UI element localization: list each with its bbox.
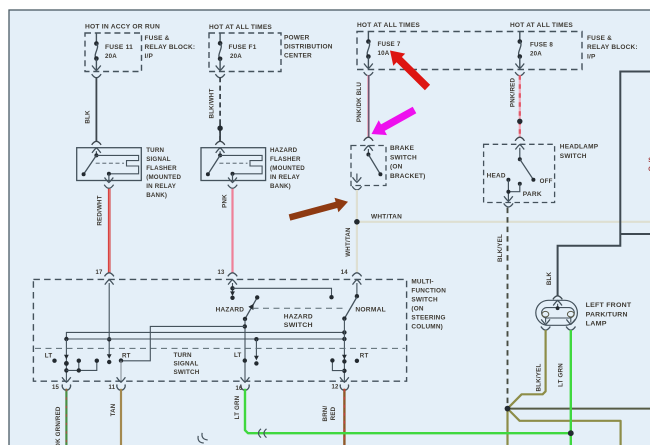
svg-text:RT: RT bbox=[122, 352, 131, 359]
svg-text:SWITCH: SWITCH bbox=[390, 154, 417, 161]
svg-text:HOT AT ALL TIMES: HOT AT ALL TIMES bbox=[510, 22, 573, 29]
svg-text:HAZARD: HAZARD bbox=[216, 306, 245, 313]
svg-text:DISTRIBUTION: DISTRIBUTION bbox=[284, 44, 333, 51]
svg-text:HAZARD: HAZARD bbox=[284, 313, 313, 320]
svg-text:POWER: POWER bbox=[284, 35, 310, 42]
svg-text:MULTI-: MULTI- bbox=[411, 279, 433, 286]
svg-text:LT GRN: LT GRN bbox=[234, 395, 241, 419]
svg-text:RED: RED bbox=[330, 406, 337, 420]
svg-text:11: 11 bbox=[109, 385, 116, 391]
svg-text:16: 16 bbox=[236, 386, 244, 392]
svg-text:FLASHER: FLASHER bbox=[270, 156, 301, 163]
svg-text:I/P: I/P bbox=[145, 53, 154, 60]
svg-text:LAMP: LAMP bbox=[586, 321, 608, 328]
svg-text:SIGNAL: SIGNAL bbox=[174, 361, 199, 368]
svg-text:COLUMN): COLUMN) bbox=[411, 324, 443, 331]
svg-text:NORMAL: NORMAL bbox=[355, 306, 386, 313]
svg-text:FUSE &: FUSE & bbox=[587, 35, 612, 42]
svg-text:13: 13 bbox=[218, 270, 226, 276]
svg-text:SWITCH: SWITCH bbox=[174, 369, 200, 376]
svg-text:FUSE 7: FUSE 7 bbox=[378, 41, 401, 48]
svg-text:RELAY BLOCK:: RELAY BLOCK: bbox=[145, 44, 196, 51]
svg-text:(ON: (ON bbox=[411, 306, 423, 313]
svg-text:DK GRN/RED: DK GRN/RED bbox=[55, 406, 62, 445]
svg-text:HAZARD: HAZARD bbox=[270, 147, 298, 154]
svg-text:RT: RT bbox=[360, 352, 369, 359]
svg-text:FUNCTION: FUNCTION bbox=[411, 288, 446, 295]
svg-text:BLK/YEL: BLK/YEL bbox=[535, 364, 542, 392]
svg-text:(ON: (ON bbox=[390, 164, 403, 171]
svg-text:BRAKE: BRAKE bbox=[390, 145, 415, 152]
svg-text:TURN: TURN bbox=[146, 147, 164, 154]
svg-text:10A: 10A bbox=[378, 50, 390, 57]
svg-text:SIGNAL: SIGNAL bbox=[146, 156, 171, 163]
svg-text:BRACKET): BRACKET) bbox=[390, 173, 426, 180]
svg-text:PARK: PARK bbox=[523, 191, 542, 198]
svg-text:FLASHER: FLASHER bbox=[146, 165, 177, 172]
svg-text:14: 14 bbox=[341, 270, 349, 276]
svg-text:HEADLAMP: HEADLAMP bbox=[560, 143, 599, 150]
svg-text:IN RELAY: IN RELAY bbox=[270, 174, 301, 181]
svg-text:FUSE 8: FUSE 8 bbox=[530, 42, 553, 49]
svg-text:SWITCH: SWITCH bbox=[560, 153, 587, 160]
svg-text:TURN: TURN bbox=[174, 352, 193, 359]
svg-text:SWITCH: SWITCH bbox=[411, 297, 438, 304]
svg-text:RELAY BLOCK:: RELAY BLOCK: bbox=[587, 44, 638, 51]
svg-text:PNK: PNK bbox=[222, 194, 229, 208]
svg-text:20A: 20A bbox=[230, 53, 242, 60]
svg-text:FUSE 11: FUSE 11 bbox=[105, 44, 133, 51]
svg-text:15: 15 bbox=[52, 385, 60, 391]
svg-text:I/P: I/P bbox=[587, 53, 596, 60]
svg-text:FUSE &: FUSE & bbox=[145, 35, 170, 42]
svg-text:(MOUNTED: (MOUNTED bbox=[270, 165, 305, 172]
svg-text:TAN: TAN bbox=[110, 403, 117, 416]
svg-text:17: 17 bbox=[96, 270, 104, 276]
svg-text:LT: LT bbox=[234, 352, 242, 359]
svg-text:RED/WHT: RED/WHT bbox=[97, 195, 104, 225]
svg-text:LEFT FRONT: LEFT FRONT bbox=[586, 302, 632, 309]
svg-text:HEAD: HEAD bbox=[487, 172, 506, 179]
svg-text:20A: 20A bbox=[530, 51, 542, 58]
svg-text:CENTER: CENTER bbox=[284, 53, 312, 60]
svg-text:PNK/DK BLU: PNK/DK BLU bbox=[356, 82, 363, 122]
svg-text:BLK/WHT: BLK/WHT bbox=[209, 89, 216, 119]
svg-text:BLK/YEL: BLK/YEL bbox=[497, 234, 504, 262]
svg-text:PARK/TURN: PARK/TURN bbox=[586, 311, 628, 318]
svg-text:BRN/: BRN/ bbox=[322, 405, 329, 421]
svg-text:HOT AT ALL TIMES: HOT AT ALL TIMES bbox=[357, 22, 420, 29]
svg-text:WHT/TAN: WHT/TAN bbox=[345, 227, 352, 257]
svg-text:IN RELAY: IN RELAY bbox=[146, 183, 177, 190]
svg-text:PNK/RED: PNK/RED bbox=[510, 78, 517, 108]
svg-text:SWITCH: SWITCH bbox=[284, 322, 313, 329]
svg-text:HOT IN ACCY OR RUN: HOT IN ACCY OR RUN bbox=[85, 24, 160, 31]
svg-text:12: 12 bbox=[332, 385, 340, 391]
svg-text:FUSE F1: FUSE F1 bbox=[229, 44, 257, 51]
svg-text:BLK: BLK bbox=[85, 110, 92, 124]
svg-text:LT GRN: LT GRN bbox=[557, 363, 564, 387]
svg-text:BANK): BANK) bbox=[146, 192, 167, 199]
svg-text:20A: 20A bbox=[105, 53, 117, 60]
svg-text:(MOUNTED: (MOUNTED bbox=[146, 174, 181, 181]
svg-text:LT: LT bbox=[45, 352, 53, 359]
svg-text:HOT AT ALL TIMES: HOT AT ALL TIMES bbox=[209, 24, 272, 31]
svg-text:BLK: BLK bbox=[546, 272, 553, 286]
svg-text:OFF: OFF bbox=[540, 178, 553, 185]
svg-text:STEERING: STEERING bbox=[411, 315, 445, 322]
svg-text:WHT/TAN: WHT/TAN bbox=[371, 213, 402, 220]
svg-text:BANK): BANK) bbox=[270, 183, 291, 190]
